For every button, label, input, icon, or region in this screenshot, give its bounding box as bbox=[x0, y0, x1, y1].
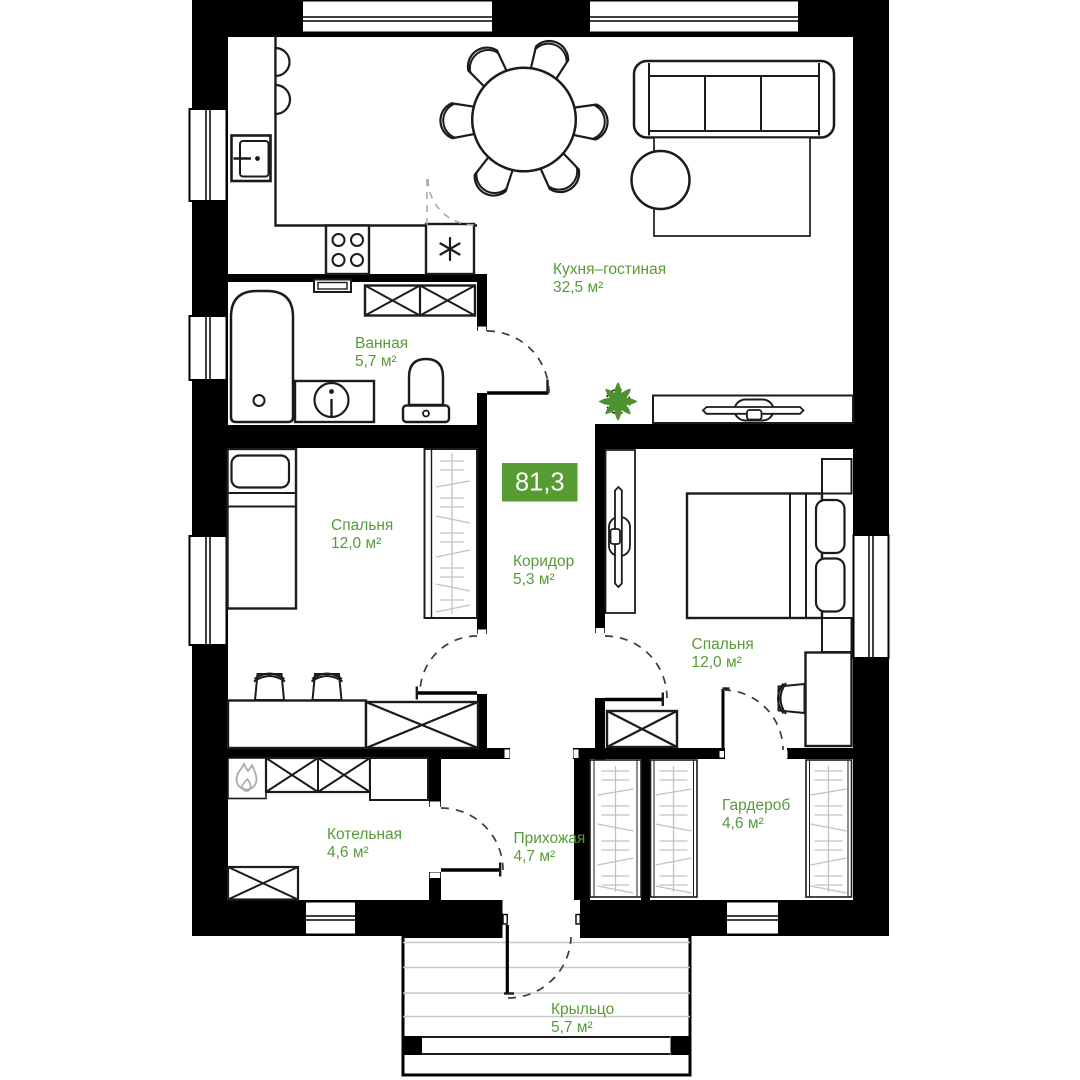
svg-text:32,5 м²: 32,5 м² bbox=[553, 279, 603, 296]
svg-text:Коридор: Коридор bbox=[513, 553, 574, 570]
svg-text:5,7 м²: 5,7 м² bbox=[551, 1019, 593, 1036]
svg-text:Крыльцо: Крыльцо bbox=[551, 1001, 614, 1018]
svg-text:Гардероб: Гардероб bbox=[722, 797, 790, 814]
svg-text:81,3: 81,3 bbox=[515, 469, 565, 497]
svg-text:Котельная: Котельная bbox=[327, 826, 402, 843]
svg-text:Спальня: Спальня bbox=[331, 517, 393, 534]
svg-text:4,6 м²: 4,6 м² bbox=[327, 844, 369, 861]
svg-text:5,7 м²: 5,7 м² bbox=[355, 353, 397, 370]
svg-text:Спальня: Спальня bbox=[692, 636, 754, 653]
svg-text:5,3 м²: 5,3 м² bbox=[513, 571, 555, 588]
svg-text:12,0 м²: 12,0 м² bbox=[331, 535, 381, 552]
svg-text:4,6 м²: 4,6 м² bbox=[722, 815, 764, 832]
svg-text:Кухня–гостиная: Кухня–гостиная bbox=[553, 261, 666, 278]
svg-text:4,7 м²: 4,7 м² bbox=[514, 848, 556, 865]
svg-text:Прихожая: Прихожая bbox=[514, 830, 586, 847]
svg-text:Ванная: Ванная bbox=[355, 335, 408, 352]
svg-text:12,0 м²: 12,0 м² bbox=[692, 654, 742, 671]
